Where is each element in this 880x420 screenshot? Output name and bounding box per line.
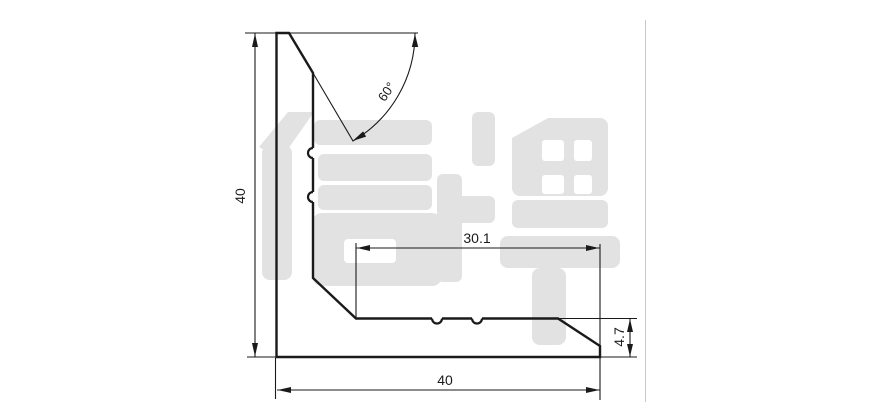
- watermark-stroke: [318, 185, 432, 210]
- notch-mask: [311, 148, 316, 158]
- dimension-label-height: 40: [232, 188, 248, 204]
- profile-drawing-svg: 信牌: [0, 0, 880, 420]
- watermark-stroke: [437, 196, 495, 223]
- notch-mask: [472, 316, 482, 321]
- watermark-stroke: [314, 120, 432, 145]
- watermark-stroke: [437, 174, 462, 282]
- watermark-hole: [542, 175, 564, 194]
- watermark-stroke: [532, 268, 566, 345]
- watermark-stroke: [500, 236, 620, 268]
- notch-mask: [432, 316, 442, 321]
- watermark-stroke: [318, 154, 432, 181]
- dimension-label-thickness: 4.7: [611, 327, 627, 347]
- watermark-hole: [574, 140, 592, 161]
- drawing-canvas: 信牌: [0, 0, 880, 420]
- watermark-stroke: [472, 112, 495, 166]
- dimension-label-width: 40: [437, 372, 453, 388]
- dimension-label-inner-width: 30.1: [463, 230, 490, 246]
- watermark-stroke: [512, 200, 608, 228]
- watermark-hole: [542, 140, 564, 161]
- watermark-hole: [574, 175, 592, 194]
- notch-mask: [311, 192, 316, 202]
